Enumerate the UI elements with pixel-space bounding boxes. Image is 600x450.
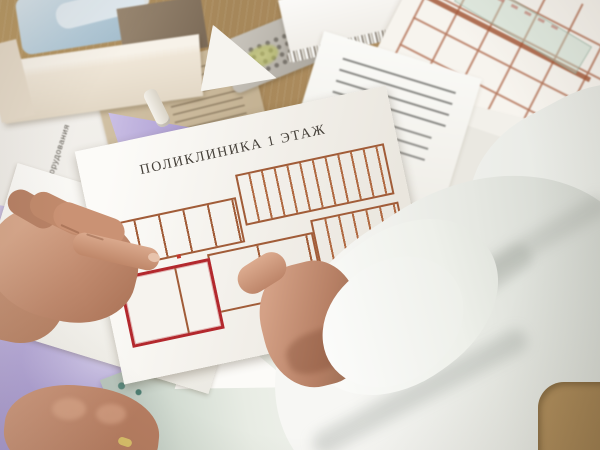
knuckle-highlight-2 bbox=[96, 404, 126, 424]
desk-photo: ческого оборудования ПОЛИКЛИНИК bbox=[0, 0, 600, 450]
knuckle-highlight-1 bbox=[52, 398, 86, 420]
desk-wood-bottom-right bbox=[538, 382, 600, 450]
highlighted-room-divider bbox=[174, 268, 190, 333]
plan-red-symbol-3 bbox=[176, 254, 181, 259]
